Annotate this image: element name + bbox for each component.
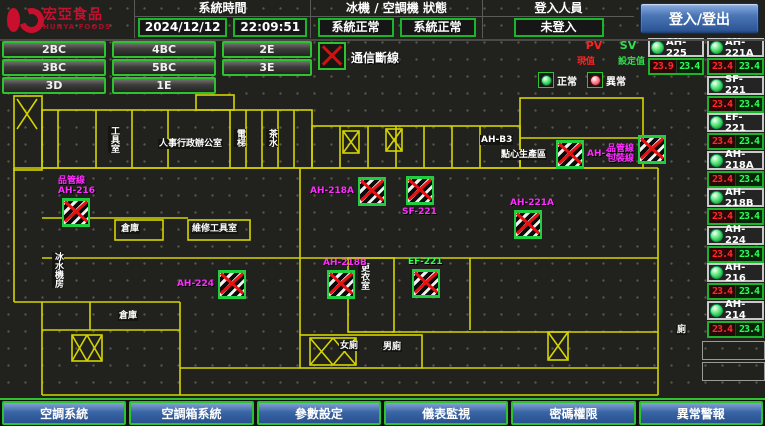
unit-status-led-icon <box>651 41 664 54</box>
zone-button-1E[interactable]: 1E <box>112 77 216 94</box>
unit-panel-AH-216[interactable]: AH-216 <box>707 263 764 282</box>
login-user-label: 登入人員 <box>483 0 634 17</box>
room-label: 倉庫 <box>120 224 140 234</box>
company-logo: 宏亞食品 HUNYA FOODS <box>6 3 130 36</box>
unit-name: AH-218B <box>725 187 762 209</box>
unit-panel-AH-218A[interactable]: AH-218A <box>707 151 764 170</box>
unit-panel-AH-214[interactable]: AH-214 <box>707 301 764 320</box>
room-label: 電梯 <box>234 129 246 147</box>
unit-panel-SF-221[interactable]: SF-221 <box>707 76 764 95</box>
unit-status-led-icon <box>710 79 723 92</box>
equipment-label: AH-218B <box>323 258 367 268</box>
offline-equipment-marker[interactable] <box>514 210 542 239</box>
unit-values-AH-218B: 23.423.4 <box>707 208 764 225</box>
equipment-label: AH-224 <box>166 279 214 289</box>
unit-pv-value: 23.4 <box>709 323 736 336</box>
brand-name-en: HUNYA FOODS <box>43 23 111 31</box>
pv-sv-headings: PV SV 現值 設定值 <box>577 39 645 67</box>
unit-status-led-icon <box>710 266 723 279</box>
zone-button-4BC[interactable]: 4BC <box>112 41 216 58</box>
room-label: 倉庫 <box>118 311 138 321</box>
zone-button-5BC[interactable]: 5BC <box>112 59 216 76</box>
zone-button-3D[interactable]: 3D <box>2 77 106 94</box>
unit-values-AH-216: 23.423.4 <box>707 283 764 300</box>
equipment-label: SF-221 <box>402 207 437 217</box>
unit-name: AH-214 <box>725 299 762 321</box>
unit-values-EF-221: 23.423.4 <box>707 133 764 150</box>
unit-sv-value: 23.4 <box>736 135 762 148</box>
room-label: 維修工具室 <box>191 224 238 234</box>
offline-equipment-marker[interactable] <box>327 270 355 299</box>
machine-status-label: 冰機 / 空調機 狀態 <box>311 0 482 17</box>
system-time-section: 系統時間 2024/12/12 22:09:51 <box>134 0 310 38</box>
sv-subheading: 設定值 <box>618 54 645 67</box>
equipment-label: EF-221 <box>408 257 443 267</box>
comm-offline-icon <box>318 42 346 70</box>
offline-equipment-marker[interactable] <box>638 135 666 164</box>
header-bar: 宏亞食品 HUNYA FOODS 系統時間 2024/12/12 22:09:5… <box>0 0 765 41</box>
room-label: 男廁 <box>382 342 402 352</box>
room-label: 女廁 <box>339 341 359 351</box>
equipment-label: AH-218A <box>306 186 354 196</box>
zone-button-3BC[interactable]: 3BC <box>2 59 106 76</box>
unit-status-led-icon <box>710 154 723 167</box>
room-label: 冰水機房 <box>52 252 64 288</box>
nav-button-儀表監視[interactable]: 儀表監視 <box>384 401 508 425</box>
unit-panel-EF-221[interactable]: EF-221 <box>707 113 764 132</box>
nav-button-參數設定[interactable]: 參數設定 <box>257 401 381 425</box>
empty-unit-slot <box>702 362 765 381</box>
sv-heading: SV <box>620 39 636 52</box>
unit-sv-value: 23.4 <box>677 60 703 73</box>
room-label: 工具室 <box>108 126 120 153</box>
unit-values-AH-214: 23.423.4 <box>707 321 764 338</box>
system-clock-value: 22:09:51 <box>233 18 307 37</box>
unit-name: EF-221 <box>725 112 762 134</box>
offline-equipment-marker[interactable] <box>412 269 440 298</box>
unit-pv-value: 23.4 <box>709 285 736 298</box>
unit-panel-AH-224[interactable]: AH-224 <box>707 226 764 245</box>
brand-name: 宏亞食品 <box>43 8 111 23</box>
unit-sv-value: 23.4 <box>736 248 762 261</box>
pv-heading: PV <box>586 39 603 52</box>
equipment-label: AH-221A <box>510 198 554 208</box>
unit-pv-value: 23.4 <box>709 248 736 261</box>
unit-name: AH-218A <box>725 149 762 171</box>
nav-button-密碼權限[interactable]: 密碼權限 <box>511 401 635 425</box>
brand-mark-icon <box>6 6 38 34</box>
room-label: 茶水 <box>266 129 278 147</box>
ac-status-value: 系統正常 <box>400 18 476 37</box>
pv-subheading: 現值 <box>577 54 595 67</box>
system-date-value: 2024/12/12 <box>138 18 228 37</box>
unit-status-led-icon <box>710 41 723 54</box>
empty-unit-slot <box>702 341 765 360</box>
unit-values-AH-218A: 23.423.4 <box>707 171 764 188</box>
bottom-nav: 空調系統空調箱系統參數設定儀表監視密碼權限異常警報 <box>0 398 765 426</box>
unit-pv-value: 23.4 <box>709 210 736 223</box>
equipment-label: 品管線 包裝線 <box>586 144 634 164</box>
offline-equipment-marker[interactable] <box>218 270 246 299</box>
zone-button-3E[interactable]: 3E <box>222 59 312 76</box>
unit-values-AH-225: 23.923.4 <box>648 58 704 75</box>
room-label: AH-B3 <box>480 135 513 145</box>
nav-button-空調系統[interactable]: 空調系統 <box>2 401 126 425</box>
unit-sv-value: 23.4 <box>736 285 762 298</box>
unit-sv-value: 23.4 <box>736 323 762 336</box>
unit-name: AH-216 <box>725 262 762 284</box>
offline-equipment-marker[interactable] <box>62 198 90 227</box>
unit-sv-value: 23.4 <box>736 98 762 111</box>
nav-button-空調箱系統[interactable]: 空調箱系統 <box>129 401 253 425</box>
login-user-value: 未登入 <box>514 18 604 37</box>
system-time-label: 系統時間 <box>135 0 310 17</box>
unit-pv-value: 23.4 <box>709 98 736 111</box>
unit-sv-value: 23.4 <box>736 210 762 223</box>
unit-status-led-icon <box>710 191 723 204</box>
unit-status-led-icon <box>710 229 723 242</box>
login-logout-button[interactable]: 登入/登出 <box>640 3 759 34</box>
room-label: 廁 <box>676 325 687 335</box>
unit-name: SF-221 <box>725 74 762 96</box>
scada-screen: 宏亞食品 HUNYA FOODS 系統時間 2024/12/12 22:09:5… <box>0 0 765 426</box>
unit-values-SF-221: 23.423.4 <box>707 96 764 113</box>
offline-equipment-marker[interactable] <box>358 177 386 206</box>
unit-sv-value: 23.4 <box>736 173 762 186</box>
unit-status-led-icon <box>710 304 723 317</box>
unit-panel-AH-218B[interactable]: AH-218B <box>707 188 764 207</box>
unit-pv-value: 23.4 <box>709 135 736 148</box>
nav-button-異常警報[interactable]: 異常警報 <box>639 401 763 425</box>
machine-status-section: 冰機 / 空調機 狀態 系統正常 系統正常 <box>310 0 482 38</box>
room-label: 點心生產區 <box>500 150 547 160</box>
normal-led-icon <box>538 72 554 88</box>
comm-offline-label: 通信斷線 <box>351 49 399 66</box>
unit-pv-value: 23.4 <box>709 60 736 73</box>
unit-pv-value: 23.4 <box>709 173 736 186</box>
chiller-status-value: 系統正常 <box>318 18 394 37</box>
unit-pv-value: 23.9 <box>650 60 677 73</box>
equipment-label: 品管線 AH-216 <box>58 176 95 196</box>
login-user-section: 登入人員 未登入 <box>482 0 634 38</box>
abnormal-led-icon <box>587 72 603 88</box>
offline-equipment-marker[interactable] <box>406 176 434 205</box>
unit-status-led-icon <box>710 116 723 129</box>
unit-sv-value: 23.4 <box>736 60 762 73</box>
zone-button-2E[interactable]: 2E <box>222 41 312 58</box>
unit-values-AH-221A: 23.423.4 <box>707 58 764 75</box>
offline-equipment-marker[interactable] <box>556 140 584 169</box>
normal-label: 正常 <box>557 73 577 88</box>
unit-name: AH-224 <box>725 224 762 246</box>
abnormal-label: 異常 <box>606 73 626 88</box>
room-label: 人事行政辦公室 <box>158 139 223 149</box>
zone-button-2BC[interactable]: 2BC <box>2 41 106 58</box>
status-legend: 正常 異常 <box>538 72 626 88</box>
unit-values-AH-224: 23.423.4 <box>707 246 764 263</box>
